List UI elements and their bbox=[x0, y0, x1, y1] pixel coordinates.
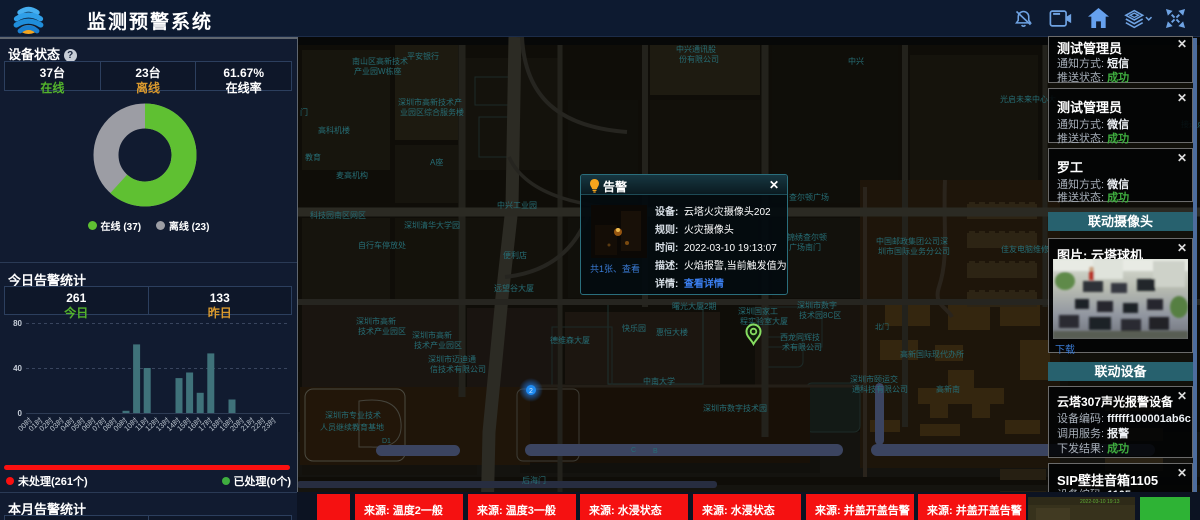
svg-text:中兴工业园: 中兴工业园 bbox=[497, 200, 537, 210]
svg-text:业园区综合服务楼: 业园区综合服务楼 bbox=[400, 107, 464, 117]
svg-text:信技术有限公司: 信技术有限公司 bbox=[430, 364, 486, 374]
svg-text:中兴通讯股: 中兴通讯股 bbox=[676, 44, 716, 54]
svg-text:广场南门: 广场南门 bbox=[789, 242, 821, 252]
svg-text:深圳市数字技术园: 深圳市数字技术园 bbox=[703, 403, 767, 413]
svg-text:南山区高新技术: 南山区高新技术 bbox=[352, 56, 408, 66]
svg-text:40: 40 bbox=[13, 364, 22, 373]
svg-text:高新国际现代办所: 高新国际现代办所 bbox=[900, 349, 964, 359]
svg-text:远望谷大厦: 远望谷大厦 bbox=[494, 283, 534, 293]
svg-text:深圳市高新: 深圳市高新 bbox=[412, 330, 452, 340]
svg-text:产业园W栋座: 产业园W栋座 bbox=[354, 66, 402, 76]
svg-text:平安银行: 平安银行 bbox=[407, 51, 439, 61]
svg-text:0: 0 bbox=[18, 409, 23, 418]
svg-text:后海门: 后海门 bbox=[522, 475, 546, 485]
svg-text:术有限公司: 术有限公司 bbox=[782, 342, 822, 352]
svg-text:人员继续教育基地: 人员继续教育基地 bbox=[320, 422, 384, 432]
svg-text:A座: A座 bbox=[430, 157, 443, 167]
svg-text:深圳国家工: 深圳国家工 bbox=[738, 306, 778, 316]
svg-text:程实验室大厦: 程实验室大厦 bbox=[740, 316, 788, 326]
svg-text:通科技有限公司: 通科技有限公司 bbox=[852, 384, 908, 394]
svg-text:份有限公司: 份有限公司 bbox=[679, 54, 719, 64]
svg-text:快乐园: 快乐园 bbox=[622, 323, 646, 333]
svg-text:门: 门 bbox=[300, 107, 308, 117]
svg-text:惠恒大楼: 惠恒大楼 bbox=[656, 327, 688, 337]
svg-text:C: C bbox=[631, 447, 636, 454]
svg-text:深圳市高新: 深圳市高新 bbox=[356, 316, 396, 326]
svg-text:佳友电脑维修: 佳友电脑维修 bbox=[1001, 244, 1049, 254]
svg-text:北门: 北门 bbox=[875, 322, 889, 331]
svg-text:西龙同辉技: 西龙同辉技 bbox=[780, 332, 820, 342]
svg-text:技术园8C区: 技术园8C区 bbox=[799, 310, 841, 320]
svg-text:锦绣查尔顿: 锦绣查尔顿 bbox=[787, 232, 827, 242]
svg-text:深圳清华大学园: 深圳清华大学园 bbox=[404, 220, 460, 230]
svg-text:D1: D1 bbox=[382, 438, 391, 445]
svg-text:深圳市颐运交: 深圳市颐运交 bbox=[850, 374, 898, 384]
svg-text:中南大学: 中南大学 bbox=[643, 376, 675, 386]
svg-text:技术产业园区: 技术产业园区 bbox=[414, 340, 462, 350]
svg-text:2: 2 bbox=[529, 388, 533, 395]
svg-text:查尔顿广场: 查尔顿广场 bbox=[789, 192, 829, 202]
svg-text:深圳市专业技术: 深圳市专业技术 bbox=[325, 410, 381, 420]
svg-text:80: 80 bbox=[13, 319, 22, 328]
svg-text:深圳市迈迪通: 深圳市迈迪通 bbox=[428, 354, 476, 364]
svg-text:B: B bbox=[653, 448, 658, 455]
svg-text:曙光大厦2期: 曙光大厦2期 bbox=[672, 301, 716, 311]
svg-text:技术产业园区: 技术产业园区 bbox=[358, 326, 406, 336]
svg-text:中兴: 中兴 bbox=[848, 56, 864, 66]
svg-text:高科机楼: 高科机楼 bbox=[318, 125, 350, 135]
svg-text:科技园南区网区: 科技园南区网区 bbox=[310, 210, 366, 220]
svg-text:便利店: 便利店 bbox=[503, 250, 527, 260]
svg-text:自行车停放处: 自行车停放处 bbox=[358, 240, 406, 250]
svg-text:中国邮政集团公司深: 中国邮政集团公司深 bbox=[876, 236, 948, 246]
svg-text:深圳市数字: 深圳市数字 bbox=[797, 300, 837, 310]
svg-text:麦高机构: 麦高机构 bbox=[336, 170, 368, 180]
svg-text:圳市国际业务分公司: 圳市国际业务分公司 bbox=[878, 246, 950, 256]
svg-text:深圳市高新技术产: 深圳市高新技术产 bbox=[398, 97, 462, 107]
svg-text:教育: 教育 bbox=[305, 152, 321, 162]
svg-text:德维森大厦: 德维森大厦 bbox=[550, 335, 590, 345]
svg-text:高新南: 高新南 bbox=[936, 384, 960, 394]
